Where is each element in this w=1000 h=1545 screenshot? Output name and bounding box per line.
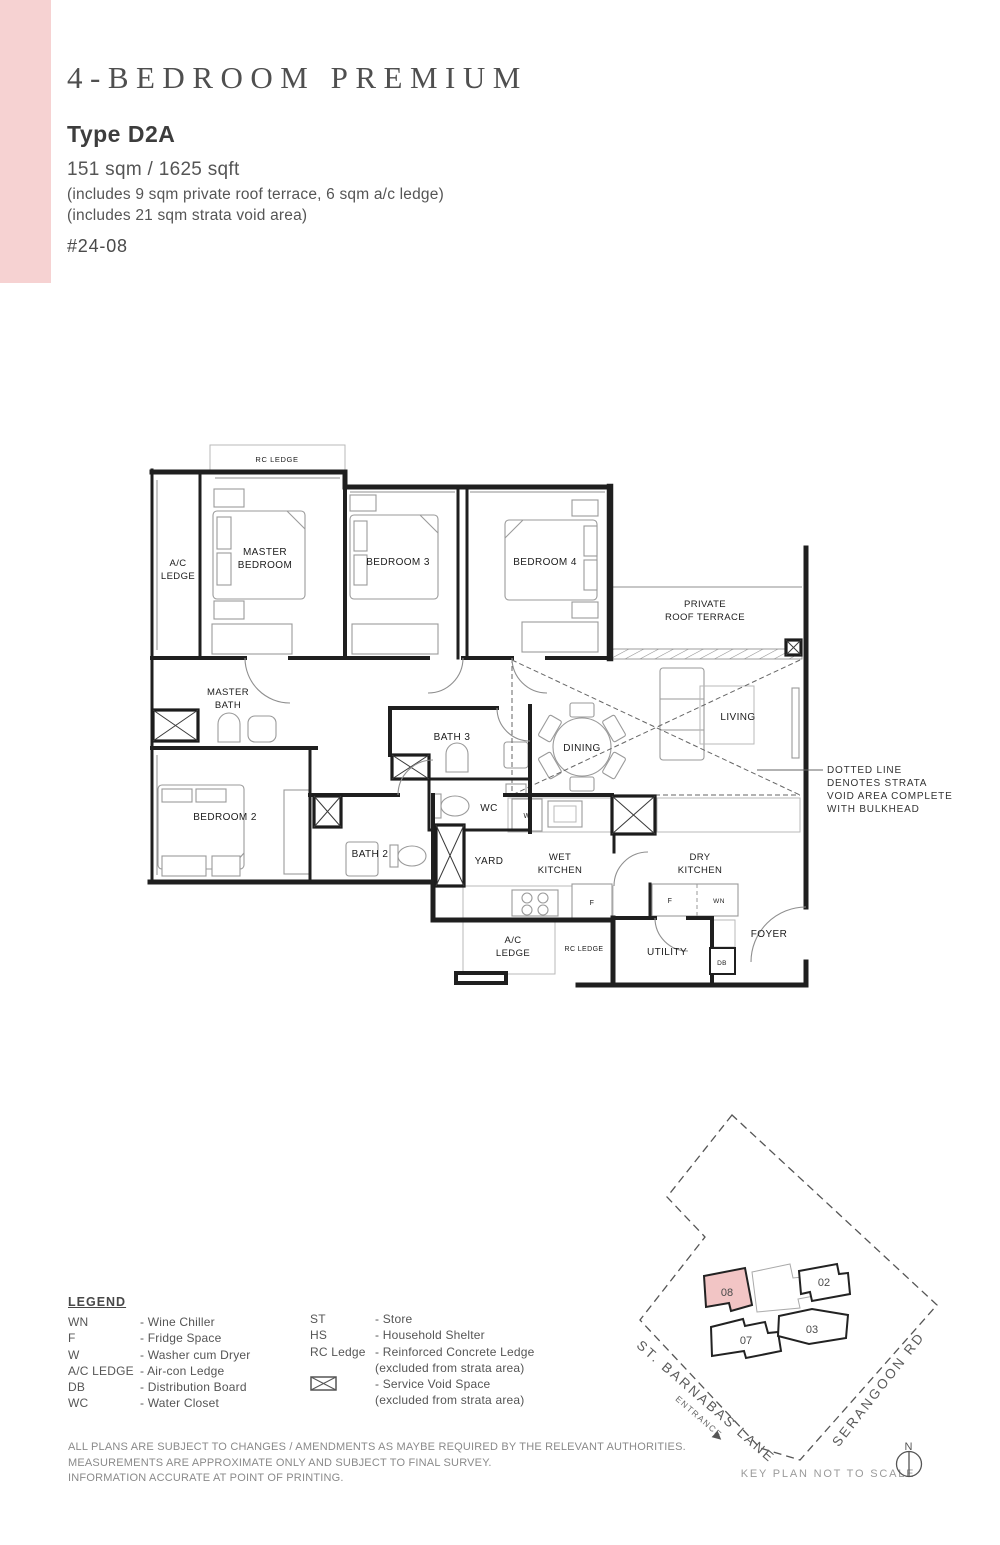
terrace-parapet	[612, 649, 802, 659]
fridge-label-dry: F	[668, 898, 673, 905]
master-bedroom-label-2: BEDROOM	[238, 560, 292, 571]
db-label: DB	[717, 960, 727, 967]
foyer-label: FOYER	[751, 929, 787, 940]
legend-row-sub: (excluded from strata area)	[310, 1392, 535, 1408]
ac-ledge-label-1: A/C	[169, 558, 186, 569]
bath2-label: BATH 2	[352, 849, 389, 860]
wet-kitchen-label-1: WET	[549, 852, 571, 863]
unit-area: 151 sqm / 1625 sqft	[67, 159, 240, 181]
legend-row-sub: (excluded from strata area)	[310, 1360, 535, 1376]
area-note-2: (includes 21 sqm strata void area)	[67, 207, 307, 225]
disclaimer-line-1: ALL PLANS ARE SUBJECT TO CHANGES / AMEND…	[68, 1440, 686, 1456]
legend-row: WC- Water Closet	[68, 1395, 251, 1411]
legend-row: ST- Store	[310, 1311, 535, 1327]
dry-kitchen-label-2: KITCHEN	[678, 865, 723, 876]
legend-title: LEGEND	[68, 1295, 251, 1309]
wine-chiller-label: WN	[713, 898, 725, 905]
utility-label: UTILITY	[647, 947, 687, 958]
bedroom3-label: BEDROOM 3	[366, 557, 430, 568]
void-note-line-1: DOTTED LINE	[827, 765, 902, 776]
unit-number-08: 08	[721, 1287, 733, 1299]
bedroom2-label: BEDROOM 2	[193, 812, 257, 823]
dry-kitchen-label-1: DRY	[689, 852, 710, 863]
unit-number-03: 03	[806, 1324, 818, 1336]
page-title: 4-BEDROOM PREMIUM	[67, 60, 528, 96]
legend-row: W- Washer cum Dryer	[68, 1347, 251, 1363]
unit-number-07: 07	[740, 1335, 752, 1347]
floorplan-page: 4-BEDROOM PREMIUM Type D2A 151 sqm / 162…	[0, 0, 1000, 1545]
legend-row: HS- Household Shelter	[310, 1327, 535, 1343]
bedroom4-label: BEDROOM 4	[513, 557, 577, 568]
service-void-icon	[310, 1376, 337, 1391]
unit-type: Type D2A	[67, 121, 175, 148]
area-note-1: (includes 9 sqm private roof terrace, 6 …	[67, 186, 444, 204]
floorplan-drawing: RC LEDGE A/C LEDGE MASTER BEDROOM BEDROO…	[120, 430, 1000, 1030]
terrace-label-2: ROOF TERRACE	[665, 612, 745, 623]
master-bath-label-1: MASTER	[207, 687, 249, 698]
bath3-label: BATH 3	[434, 732, 471, 743]
washer-label: W	[523, 813, 530, 820]
yard-label: YARD	[475, 856, 504, 867]
legend-row: DB- Distribution Board	[68, 1379, 251, 1395]
unit-number-02: 02	[818, 1277, 830, 1289]
unit-number: #24-08	[67, 236, 128, 257]
void-note-line-2: DENOTES STRATA	[827, 778, 927, 789]
legend-row: A/C LEDGE- Air-con Ledge	[68, 1363, 251, 1379]
road-label-serangoon: SERANGOON RD	[829, 1329, 928, 1449]
rc-ledge-top-label: RC LEDGE	[255, 455, 298, 464]
void-note-line-3: VOID AREA COMPLETE	[827, 791, 953, 802]
accent-pink-block	[0, 0, 51, 283]
master-bath-label-2: BATH	[215, 700, 241, 711]
disclaimer: ALL PLANS ARE SUBJECT TO CHANGES / AMEND…	[68, 1440, 686, 1487]
rc-ledge-bottom-label: RC LEDGE	[565, 946, 604, 953]
disclaimer-line-2: MEASUREMENTS ARE APPROXIMATE ONLY AND SU…	[68, 1456, 686, 1472]
fridge-label-wet: F	[590, 900, 595, 907]
master-bedroom-label-1: MASTER	[243, 547, 287, 558]
legend-right-column: ST- Store HS- Household Shelter RC Ledge…	[310, 1311, 535, 1409]
terrace-label-1: PRIVATE	[684, 599, 726, 610]
legend-row: F- Fridge Space	[68, 1330, 251, 1346]
legend-row: WN- Wine Chiller	[68, 1314, 251, 1330]
ac-ledge-label-2: LEDGE	[161, 571, 195, 582]
legend-row: RC Ledge- Reinforced Concrete Ledge	[310, 1344, 535, 1360]
wet-kitchen-label-2: KITCHEN	[538, 865, 583, 876]
wc-label: WC	[480, 803, 497, 814]
key-plan-note: KEY PLAN NOT TO SCALE	[741, 1468, 916, 1480]
legend: LEGEND WN- Wine Chiller F- Fridge Space …	[68, 1295, 251, 1412]
dining-label: DINING	[563, 743, 600, 754]
void-note-line-4: WITH BULKHEAD	[827, 804, 920, 815]
ac-ledge-bottom-label-2: LEDGE	[496, 948, 530, 959]
strata-void-annotation: DOTTED LINE DENOTES STRATA VOID AREA COM…	[757, 765, 953, 815]
disclaimer-line-3: INFORMATION ACCURATE AT POINT OF PRINTIN…	[68, 1471, 686, 1487]
legend-row: - Service Void Space	[310, 1376, 535, 1392]
ac-ledge-bottom-label-1: A/C	[504, 935, 521, 946]
living-label: LIVING	[720, 712, 755, 723]
